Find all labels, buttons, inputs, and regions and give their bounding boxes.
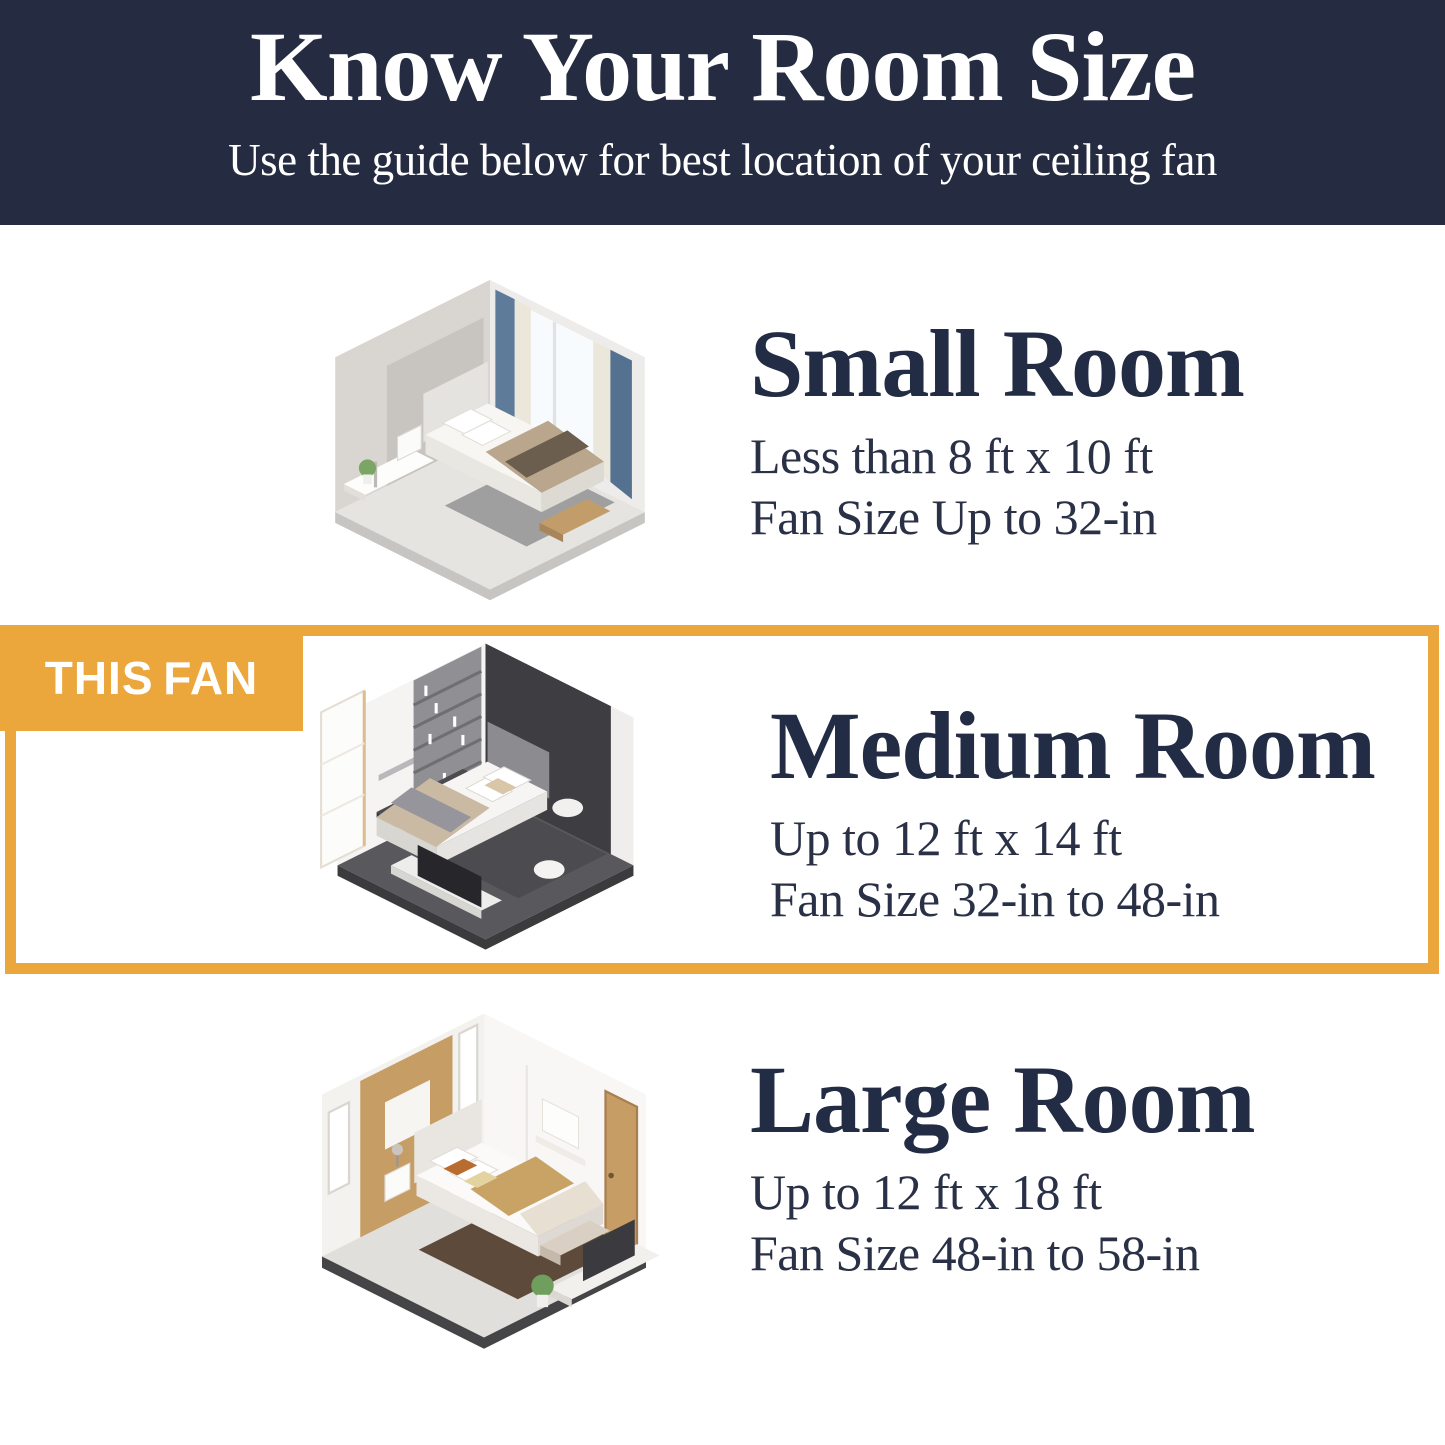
page-title: Know Your Room Size xyxy=(0,14,1445,119)
small-room-illustration xyxy=(275,224,705,611)
header-banner: Know Your Room Size Use the guide below … xyxy=(0,0,1445,225)
plant xyxy=(531,1275,554,1298)
large-room-illustration xyxy=(259,955,709,1360)
large-room-fan-size: Fan Size 48-in to 58-in xyxy=(750,1223,1255,1284)
small-room-text: Small Room Less than 8 ft x 10 ft Fan Si… xyxy=(750,316,1244,548)
medium-room-title: Medium Room xyxy=(770,698,1375,794)
large-room-title: Large Room xyxy=(750,1052,1255,1148)
room-size-infographic: Know Your Room Size Use the guide below … xyxy=(0,0,1445,1445)
medium-room-fan-size: Fan Size 32-in to 48-in xyxy=(770,869,1375,930)
window xyxy=(459,1025,477,1115)
blue-curtain xyxy=(610,350,632,499)
small-room-title: Small Room xyxy=(750,316,1244,412)
medium-room-size: Up to 12 ft x 14 ft xyxy=(770,808,1375,869)
side-table xyxy=(552,799,583,817)
small-room-size: Less than 8 ft x 10 ft xyxy=(750,426,1244,487)
plant xyxy=(359,459,376,476)
page-subtitle: Use the guide below for best location of… xyxy=(0,134,1445,186)
wardrobe xyxy=(321,691,364,868)
large-room-text: Large Room Up to 12 ft x 18 ft Fan Size … xyxy=(750,1052,1255,1284)
small-room-fan-size: Fan Size Up to 32-in xyxy=(750,487,1244,548)
window xyxy=(329,1102,349,1193)
this-fan-badge: THIS FAN xyxy=(0,625,303,731)
medium-room-text: Medium Room Up to 12 ft x 14 ft Fan Size… xyxy=(770,698,1375,930)
lamp xyxy=(392,1144,403,1155)
medium-room-illustration xyxy=(280,590,691,960)
large-room-size: Up to 12 ft x 18 ft xyxy=(750,1162,1255,1223)
this-fan-badge-label: THIS FAN xyxy=(45,651,259,705)
round-ottoman xyxy=(534,860,565,878)
